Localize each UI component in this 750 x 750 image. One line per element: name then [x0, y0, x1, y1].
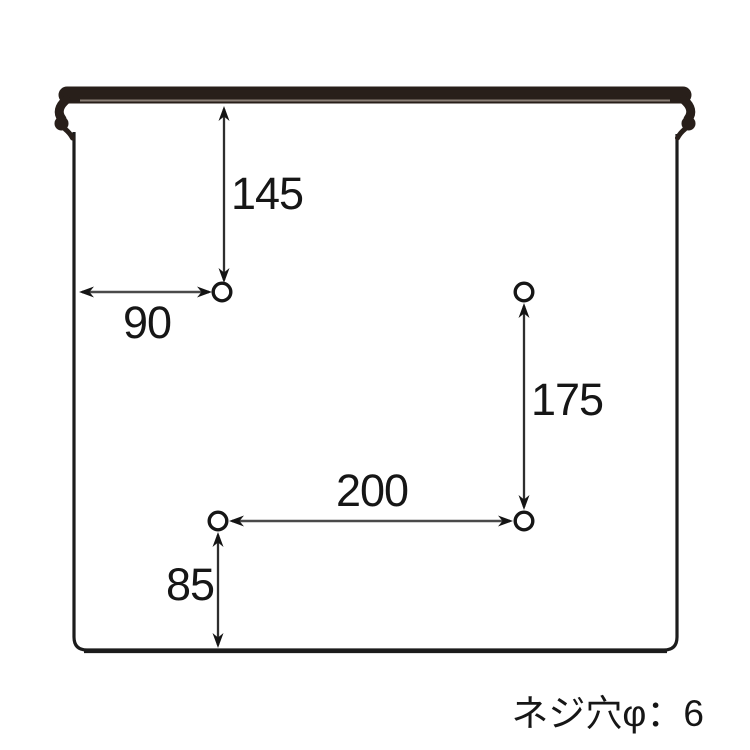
- dim-hole-bottom-offset: [213, 532, 224, 648]
- dim-right-holes-vertical-spacing: [519, 303, 530, 510]
- dim-label-90: 90: [123, 297, 171, 348]
- top-rail-right-taper: [678, 129, 686, 138]
- top-rail-left-curl: [59, 100, 66, 119]
- screw-hole-lower-right: [515, 512, 533, 530]
- dim-label-145: 145: [231, 168, 303, 219]
- dimension-diagram-svg: 145 90 175 200 85 ネジ穴φ：6: [0, 0, 750, 750]
- top-rail: [55, 95, 696, 138]
- dim-hole-left-offset: [79, 287, 212, 298]
- dim-bottom-holes-horizontal-spacing: [229, 516, 513, 527]
- dim-label-175: 175: [531, 374, 603, 425]
- screw-hole-upper-right: [515, 283, 533, 301]
- screw-hole-diameter-note: ネジ穴φ：6: [511, 693, 704, 734]
- dim-label-200: 200: [336, 465, 408, 516]
- dim-label-85: 85: [166, 559, 214, 610]
- screw-hole-lower-left: [209, 512, 227, 530]
- diagram-canvas: 145 90 175 200 85 ネジ穴φ：6: [0, 0, 750, 750]
- screw-hole-upper-left: [213, 283, 231, 301]
- dim-hole-top-offset: [219, 106, 230, 283]
- top-rail-right-curl: [684, 100, 691, 119]
- top-rail-left-taper: [65, 129, 73, 138]
